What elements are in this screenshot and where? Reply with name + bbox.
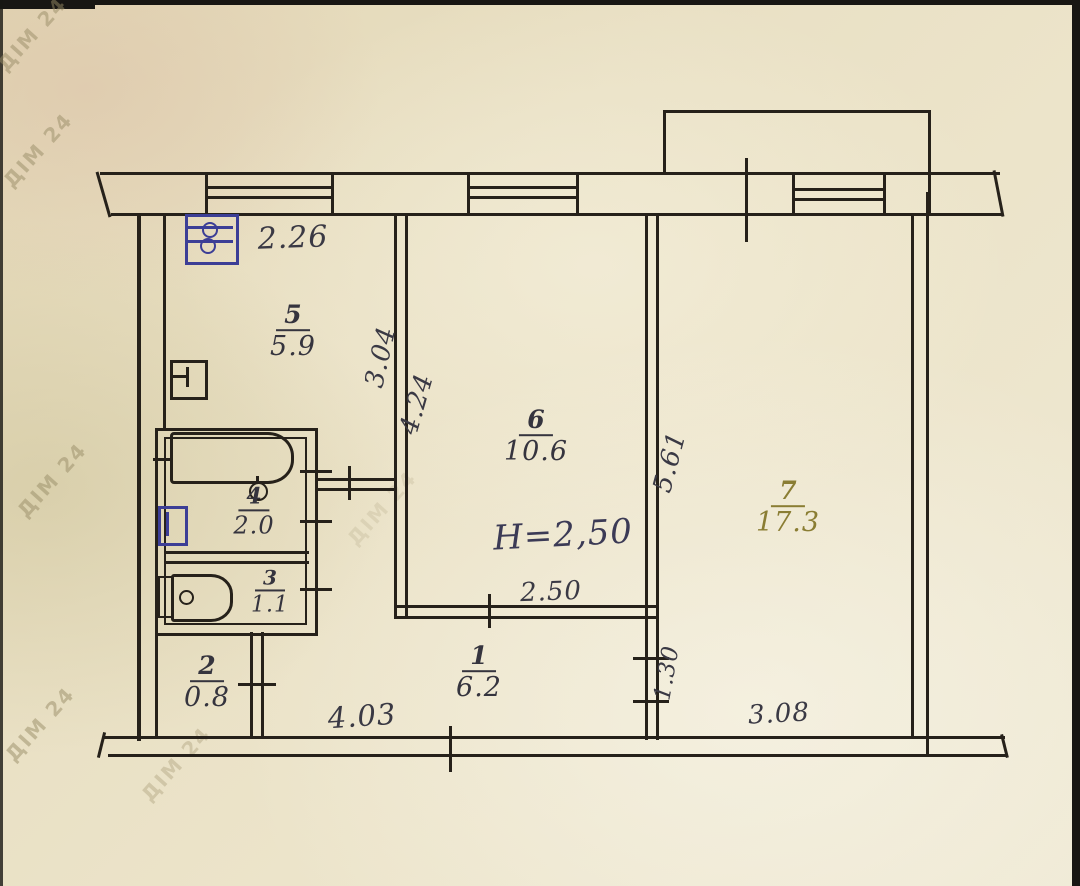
room-3-label: 3 1.1: [251, 567, 289, 616]
room-number: 1: [462, 643, 495, 672]
watermark: ДІМ 24: [12, 438, 91, 522]
watermark: ДІМ 24: [136, 722, 215, 806]
wall-tick: [449, 726, 452, 772]
room-area: 6.2: [456, 672, 502, 702]
room-7-label: 7 17.3: [756, 478, 820, 538]
wall-tick: [745, 158, 748, 242]
photo-edge-right: [1072, 0, 1080, 886]
ceiling-height-note: H=2,50: [492, 511, 634, 558]
room-area: 1.1: [251, 591, 289, 616]
room-area: 0.8: [184, 682, 230, 712]
room-number: 5: [276, 302, 309, 331]
room-area: 17.3: [756, 507, 820, 537]
dim-bottom-left: 4.03: [327, 697, 398, 736]
room-number: 7: [771, 478, 804, 507]
door-tick: [300, 588, 332, 591]
dim-bottom-right: 3.08: [747, 697, 810, 730]
floor-plan-scan: ДІМ 24 ДІМ 24 ДІМ 24 ДІМ 24 ДІМ 24 ДІМ 2…: [0, 0, 1080, 886]
watermark: ДІМ 24: [0, 682, 79, 766]
watermark: ДІМ 24: [0, 108, 78, 192]
room-1-label: 1 6.2: [456, 643, 502, 703]
dim-hall-right-wall: 1.30: [649, 644, 684, 703]
door-tick: [300, 520, 332, 523]
room-5-label: 5 5.9: [270, 302, 316, 362]
room-4-label: 4 2.0: [233, 485, 274, 538]
dim-kitchen-width: 2.26: [257, 219, 329, 256]
dim-room6-depth: 4.24: [394, 370, 440, 438]
door-tick: [348, 466, 351, 500]
dim-room6-width: 2.50: [520, 576, 583, 608]
room-2-label: 2 0.8: [184, 653, 230, 713]
room-number: 2: [190, 653, 223, 682]
room-number: 4: [238, 485, 269, 511]
room-number: 6: [519, 407, 552, 436]
door-tick: [488, 594, 491, 628]
dim-room7-depth: 5.61: [648, 428, 693, 496]
photo-edge-top: [0, 0, 1080, 5]
room-area: 5.9: [270, 331, 316, 361]
room-number: 3: [255, 567, 285, 591]
photo-edge-left: [0, 0, 3, 886]
door-tick: [300, 470, 332, 473]
room-6-label: 6 10.6: [504, 407, 568, 467]
door-tick: [238, 683, 276, 686]
room-area: 2.0: [233, 511, 274, 538]
room-area: 10.6: [504, 436, 568, 466]
watermark: ДІМ 24: [0, 0, 72, 76]
